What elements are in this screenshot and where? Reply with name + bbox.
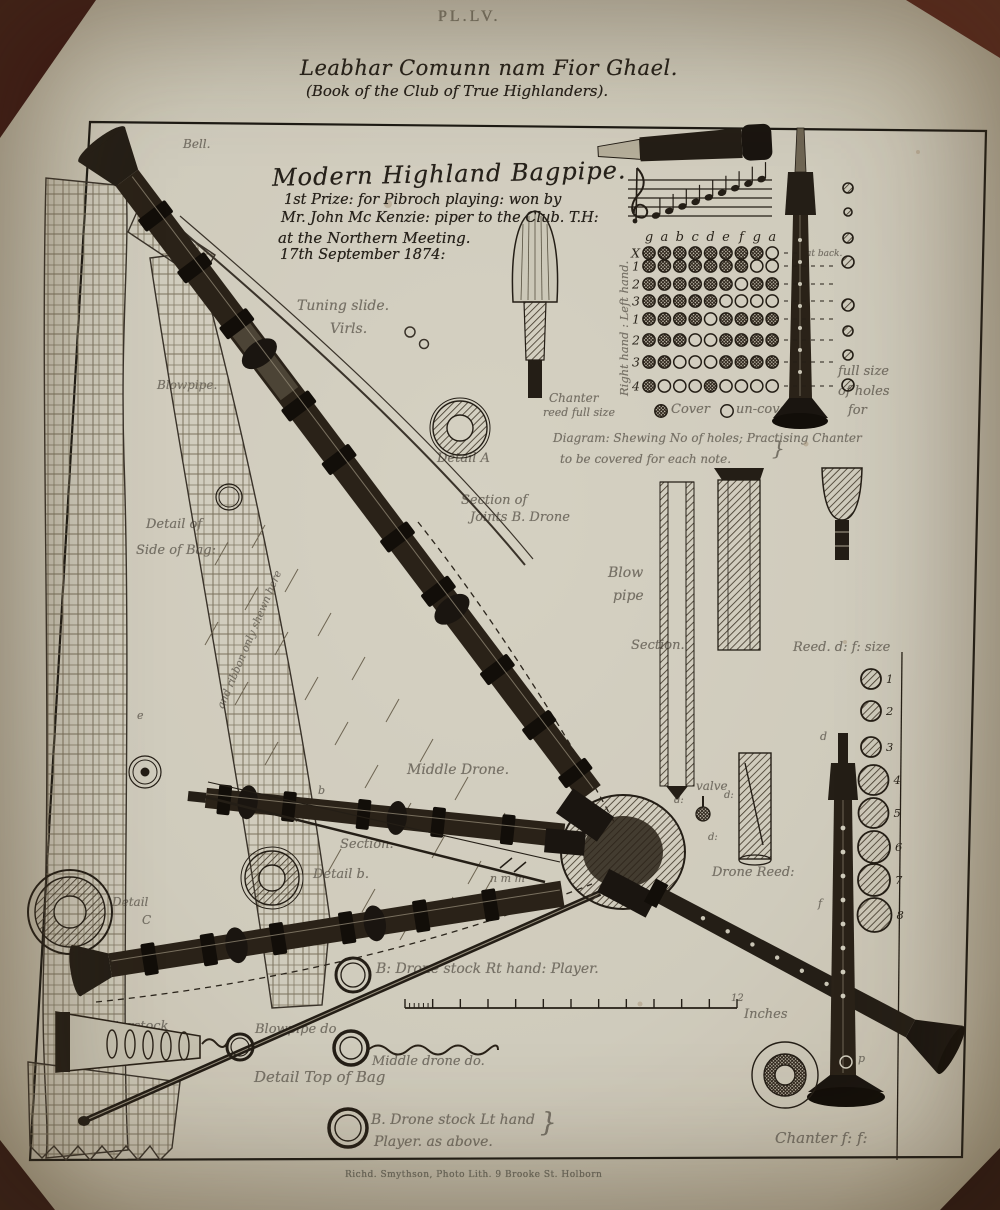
svg-text:6: 6 bbox=[895, 840, 902, 854]
plate-number: PL.LV. bbox=[438, 8, 500, 26]
title-gaelic: Leabhar Comunn nam Fior Ghael. bbox=[300, 56, 678, 80]
svg-text:b: b bbox=[676, 230, 684, 245]
printer-imprint: Richd. Smythson, Photo Lith. 9 Brooke St… bbox=[345, 1170, 602, 1180]
svg-text:8: 8 bbox=[897, 908, 904, 922]
heading-line3: at the Northern Meeting. bbox=[278, 229, 471, 247]
svg-text:2: 2 bbox=[631, 277, 640, 292]
svg-text:g: g bbox=[753, 230, 761, 245]
svg-text:4: 4 bbox=[631, 379, 640, 394]
svg-text:7: 7 bbox=[895, 873, 903, 887]
svg-text:4: 4 bbox=[893, 773, 901, 787]
svg-text:g: g bbox=[645, 230, 653, 245]
heading-line1: 1st Prize: for Pibroch playing: won by bbox=[284, 192, 561, 208]
svg-text:a: a bbox=[661, 230, 669, 245]
engraving-plate-page: gabcdefgaX1231234 12345678 Bell.Tuning s… bbox=[0, 0, 1000, 1210]
svg-text:e: e bbox=[722, 230, 730, 245]
svg-text:3: 3 bbox=[632, 294, 640, 309]
svg-text:a: a bbox=[768, 230, 776, 245]
svg-text:1: 1 bbox=[632, 259, 640, 274]
title-english: (Book of the Club of True Highlanders). bbox=[306, 82, 608, 100]
heading-line4: 17th September 1874: bbox=[280, 247, 445, 263]
svg-text:2: 2 bbox=[631, 333, 640, 348]
svg-text:d: d bbox=[706, 230, 714, 245]
svg-text:2: 2 bbox=[885, 704, 893, 718]
svg-text:1: 1 bbox=[886, 672, 893, 686]
svg-text:c: c bbox=[692, 230, 700, 245]
svg-text:1: 1 bbox=[632, 312, 640, 327]
heading-line2: Mr. John Mc Kenzie: piper to the Club. T… bbox=[281, 210, 599, 226]
svg-text:5: 5 bbox=[894, 806, 901, 820]
svg-text:3: 3 bbox=[632, 355, 640, 370]
svg-text:3: 3 bbox=[886, 740, 893, 754]
